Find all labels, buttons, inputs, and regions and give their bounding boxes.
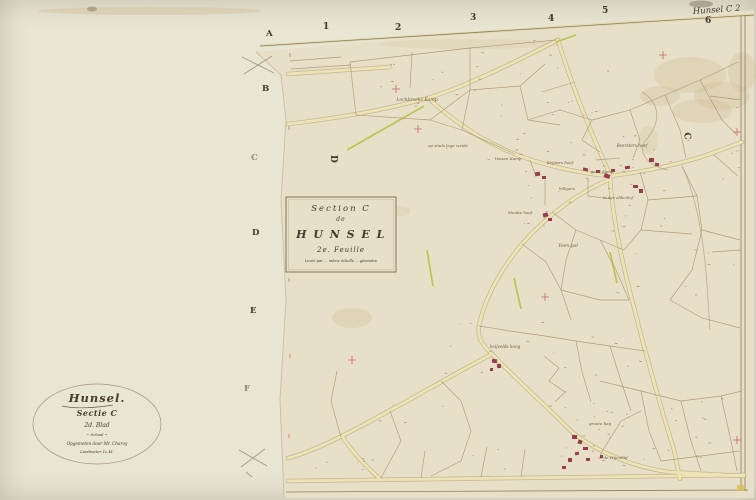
field-label: Keijsers hoef bbox=[546, 160, 575, 165]
parcel-number-mark bbox=[667, 450, 670, 451]
row-letter: B bbox=[262, 84, 269, 94]
field-label: Veen pol bbox=[558, 243, 578, 249]
grid-number: 1 bbox=[323, 22, 329, 32]
parcel-number-mark bbox=[326, 462, 328, 463]
cartouche-line: H U N S E L bbox=[295, 228, 386, 241]
building bbox=[572, 435, 577, 439]
cartouche-line: 2e. Feuille bbox=[316, 246, 365, 254]
parcel-number-mark bbox=[476, 66, 478, 67]
grid-number: 5 bbox=[602, 6, 608, 16]
field-label: hilligers bbox=[559, 186, 575, 191]
title-cartouche: Section CdeH U N S E L2e. FeuilleLevée p… bbox=[286, 197, 396, 272]
parcel-number-mark bbox=[432, 80, 434, 81]
field-label: op stads lage weide bbox=[428, 143, 469, 148]
cartouche-line: Section C bbox=[311, 204, 371, 214]
building bbox=[568, 458, 572, 462]
row-letter: A bbox=[265, 29, 273, 39]
field-label: groote heg bbox=[589, 421, 611, 426]
building bbox=[649, 158, 654, 162]
field-label: in den aldenhof bbox=[603, 195, 634, 200]
row-letters: ABCDEF bbox=[244, 29, 273, 394]
stamp-line: Landmeter 1e Kl. bbox=[79, 449, 113, 454]
stamp-line: 2d. Blad bbox=[83, 422, 109, 429]
building bbox=[490, 368, 493, 371]
stamp-line: ~ Schaal ~ bbox=[86, 432, 108, 437]
stamp-line: Sectie C bbox=[77, 408, 118, 418]
building bbox=[562, 466, 566, 469]
row-letter: E bbox=[250, 306, 257, 316]
row-letter: C bbox=[251, 153, 258, 163]
parcel-number-mark bbox=[363, 459, 365, 460]
oval-stamp: Hunsel.Sectie C2d. Blad~ Schaal ~Opgemet… bbox=[33, 384, 161, 464]
grid-number: 3 bbox=[470, 13, 476, 23]
field-label: Beersters hoef bbox=[615, 143, 649, 148]
building bbox=[625, 166, 630, 169]
parcel-number-mark bbox=[546, 211, 547, 212]
field-label: geert Kamp bbox=[591, 169, 614, 174]
pencil-cross-marks bbox=[239, 56, 274, 477]
sheet-torn-edge bbox=[256, 52, 286, 498]
cartouche-line: Levée par … même échelle … géomètre bbox=[304, 259, 378, 263]
field-label: Vossen Kamp bbox=[495, 156, 522, 161]
parcel-number-mark bbox=[694, 250, 697, 251]
stamp-line: Hunsel. bbox=[68, 391, 126, 405]
parcel-number-mark bbox=[565, 407, 567, 408]
building bbox=[497, 364, 501, 368]
building bbox=[542, 176, 546, 179]
stamp-text: Hunsel.Sectie C2d. Blad~ Schaal ~Opgemet… bbox=[67, 391, 128, 454]
grid-number: 2 bbox=[395, 23, 401, 33]
field-label: in de Wijenhof bbox=[598, 455, 629, 460]
building bbox=[548, 218, 552, 221]
adjacent-sheet-letter: D bbox=[328, 155, 338, 163]
building bbox=[492, 359, 498, 364]
building bbox=[535, 172, 541, 177]
cartouche-line: de bbox=[336, 216, 345, 223]
field-label: Lochbroeks Kamp bbox=[395, 97, 437, 103]
building bbox=[586, 458, 590, 461]
parcel-number-mark bbox=[615, 343, 618, 344]
row-letter: F bbox=[244, 384, 250, 394]
building bbox=[633, 185, 638, 188]
field-label: heijvelds hoog bbox=[490, 344, 521, 349]
cadastral-map-scan: 123456 ABCDEF DC Lochbroeks Kampop stads… bbox=[0, 0, 756, 500]
map-sheet-svg: 123456 ABCDEF DC Lochbroeks Kampop stads… bbox=[0, 0, 756, 500]
building bbox=[639, 189, 643, 193]
grid-number: 6 bbox=[705, 16, 711, 26]
stamp-line: Opgemeten door Mr. Charoy bbox=[67, 441, 128, 446]
field-label: Munke hoef bbox=[507, 210, 534, 215]
parcel-number-mark bbox=[675, 420, 677, 421]
building bbox=[583, 447, 588, 450]
yellow-symbol bbox=[737, 485, 744, 491]
grid-number: 4 bbox=[548, 14, 554, 24]
row-letter: D bbox=[252, 228, 260, 238]
